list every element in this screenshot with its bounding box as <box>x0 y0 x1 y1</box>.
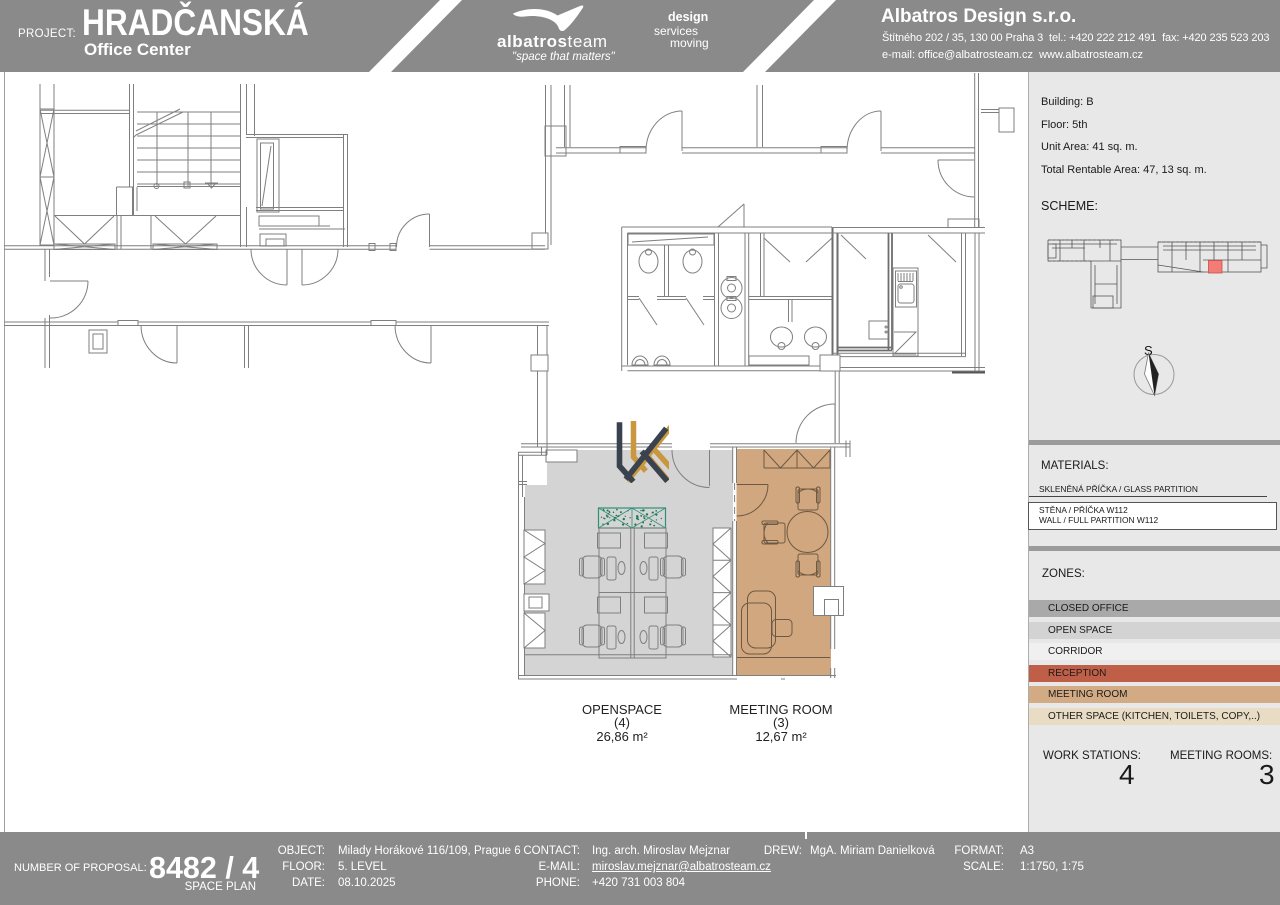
svg-text:26,86 m²: 26,86 m² <box>596 729 648 744</box>
svg-text:(4): (4) <box>614 715 630 730</box>
svg-text:12,67 m²: 12,67 m² <box>755 729 807 744</box>
svg-text:(3): (3) <box>773 715 789 730</box>
